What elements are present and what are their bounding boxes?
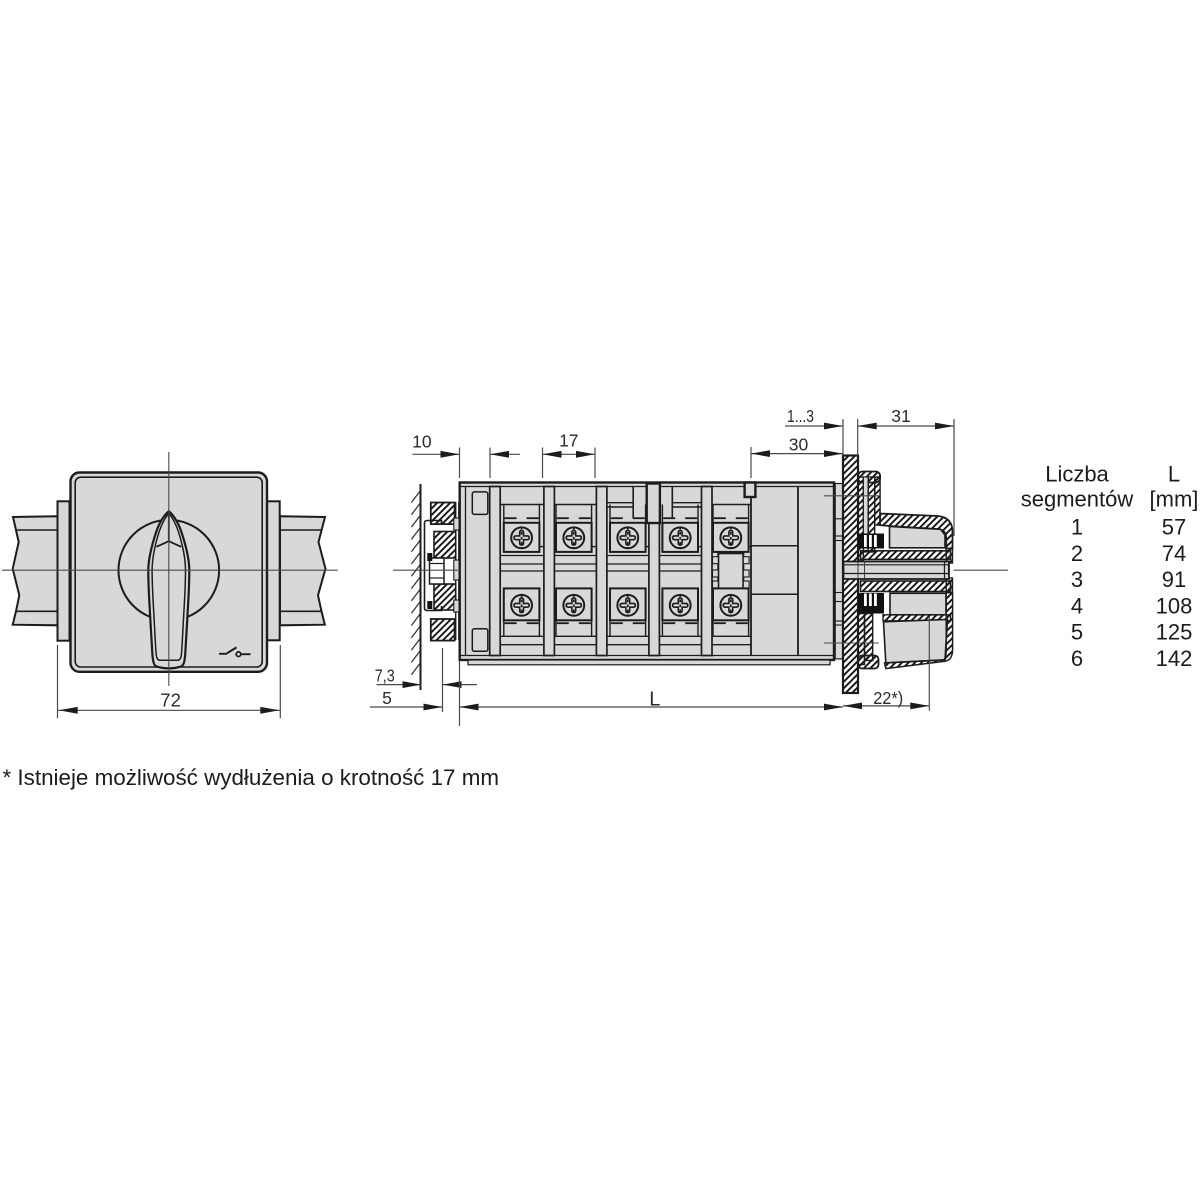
svg-text:30: 30 — [789, 435, 809, 455]
svg-text:* Istnieje możliwość wydłużeni: * Istnieje możliwość wydłużenia o krotno… — [3, 765, 500, 790]
svg-text:72: 72 — [160, 690, 181, 711]
svg-text:3: 3 — [1071, 567, 1083, 592]
svg-text:5: 5 — [1071, 620, 1083, 645]
svg-text:10: 10 — [412, 432, 432, 452]
svg-text:17: 17 — [559, 430, 578, 450]
svg-text:7,3: 7,3 — [375, 666, 395, 686]
svg-text:4: 4 — [1071, 593, 1083, 618]
svg-text:125: 125 — [1156, 620, 1193, 645]
svg-text:1: 1 — [1071, 515, 1083, 540]
svg-text:segmentów: segmentów — [1021, 487, 1134, 512]
svg-text:108: 108 — [1156, 593, 1193, 618]
svg-text:57: 57 — [1162, 515, 1186, 540]
svg-text:1...3: 1...3 — [787, 406, 814, 426]
svg-text:91: 91 — [1162, 567, 1186, 592]
svg-text:[mm]: [mm] — [1150, 487, 1199, 512]
svg-text:L: L — [1168, 462, 1180, 487]
svg-text:6: 6 — [1071, 646, 1083, 671]
svg-text:74: 74 — [1162, 541, 1186, 566]
svg-text:L: L — [649, 689, 660, 711]
svg-text:5: 5 — [382, 688, 392, 708]
svg-text:Liczba: Liczba — [1045, 462, 1109, 487]
svg-text:142: 142 — [1156, 646, 1193, 671]
svg-text:31: 31 — [891, 406, 910, 426]
svg-text:22*): 22*) — [873, 688, 903, 708]
svg-text:2: 2 — [1071, 541, 1083, 566]
